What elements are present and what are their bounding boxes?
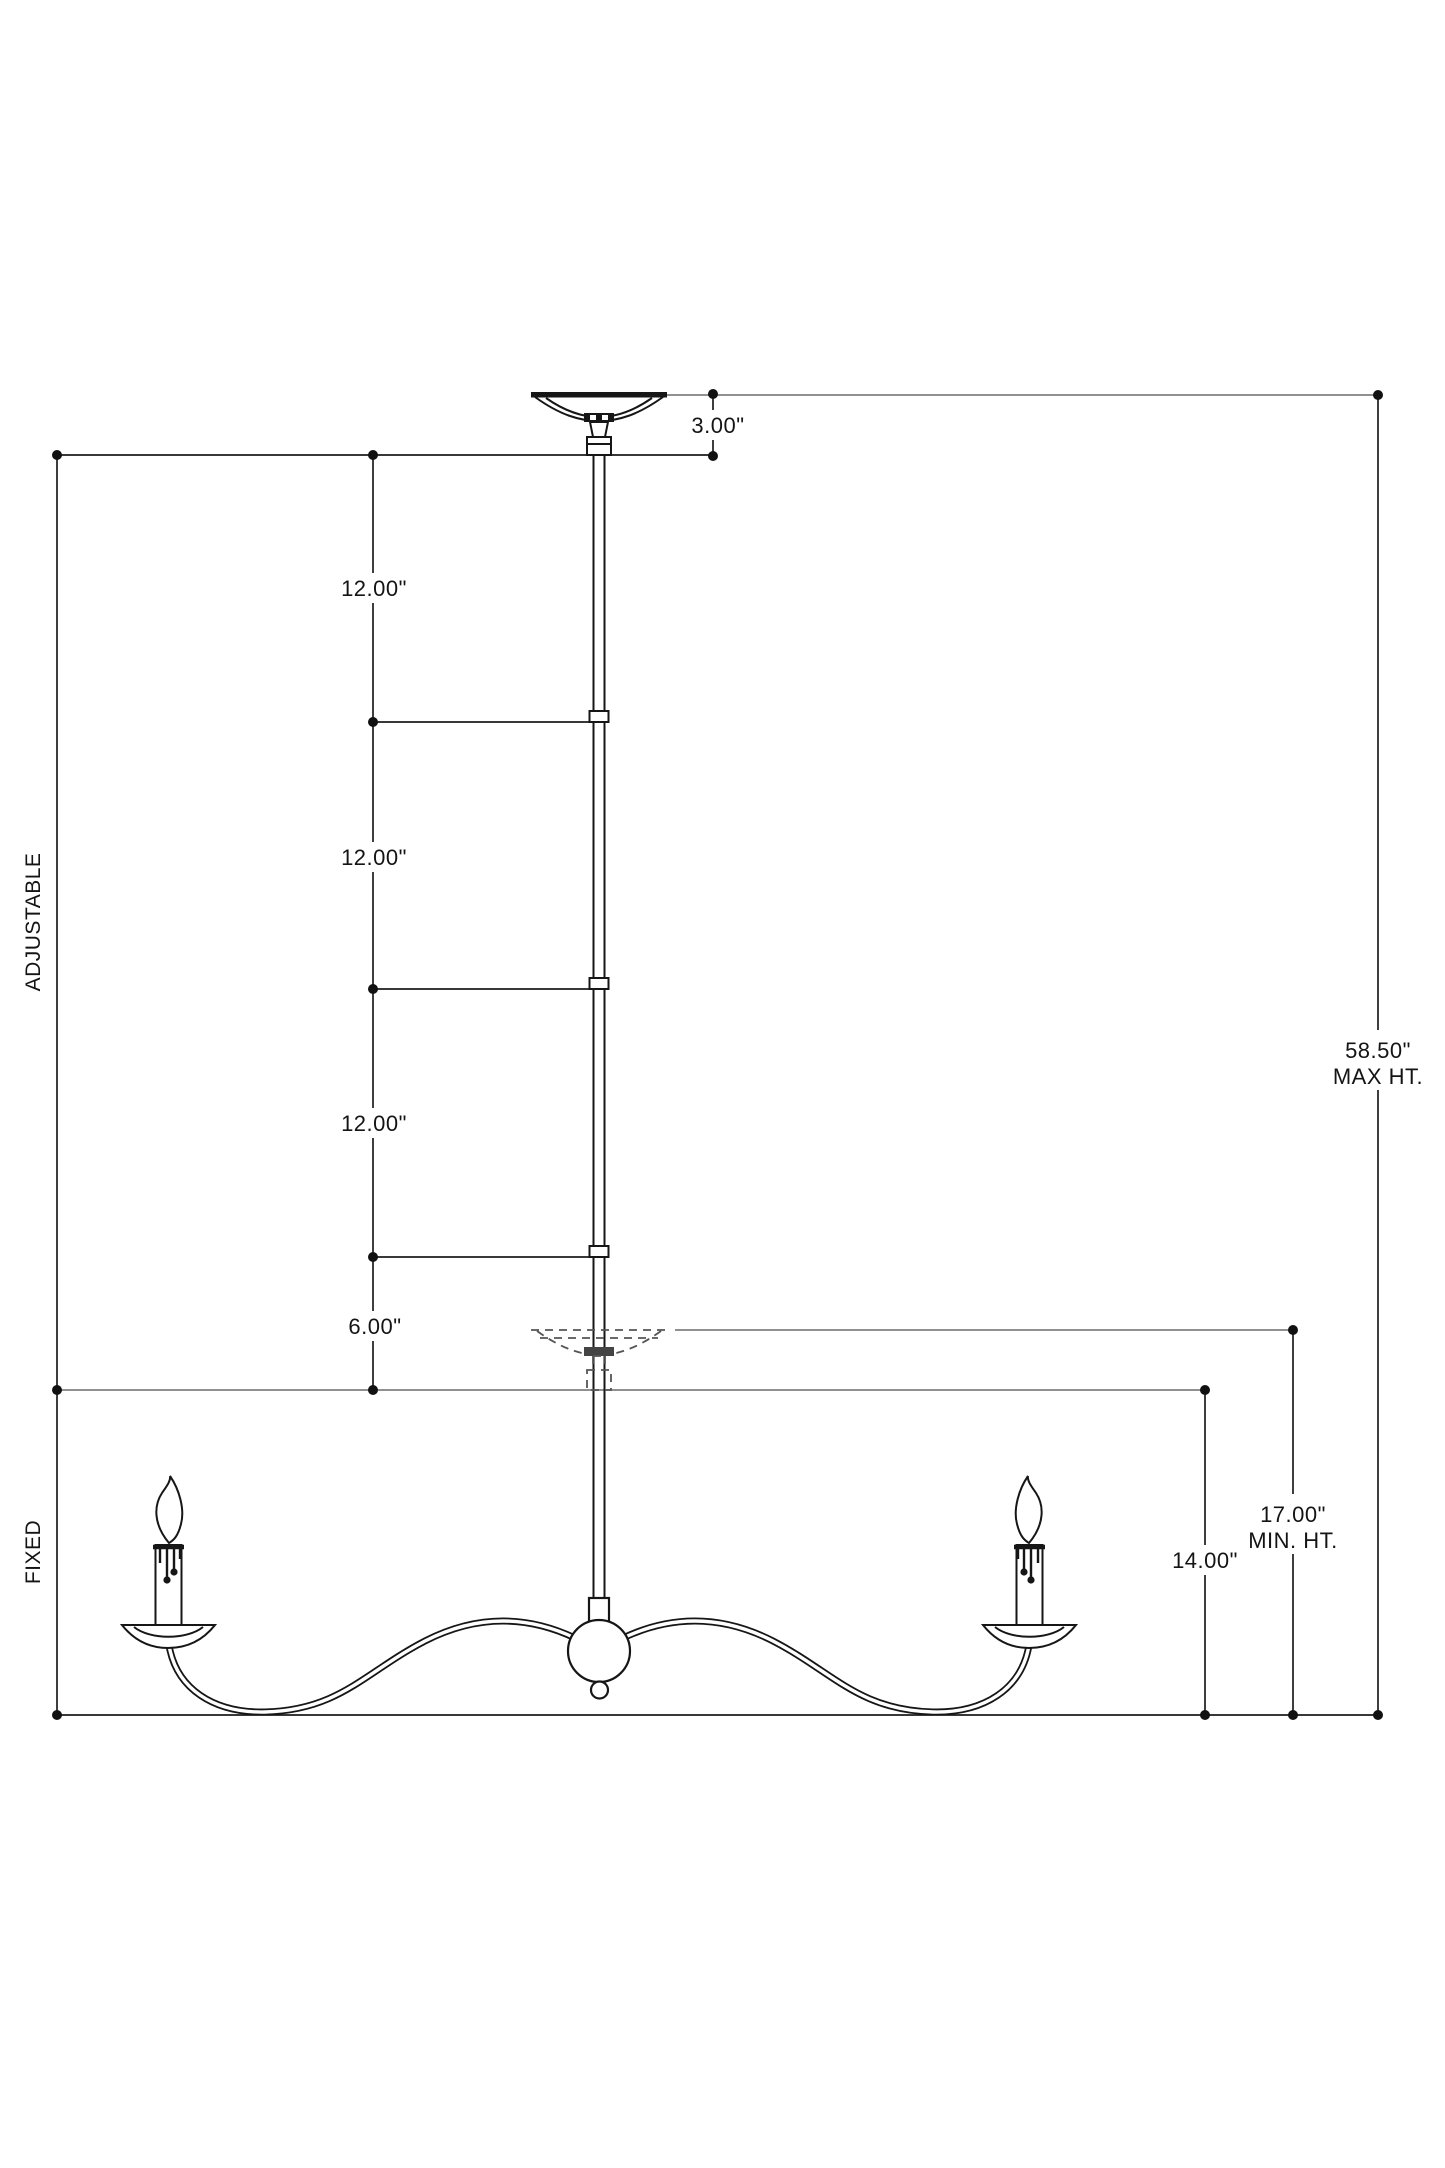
fixed-section-label: FIXED bbox=[22, 1520, 45, 1584]
right-candle-assembly bbox=[983, 1476, 1076, 1648]
center-collar bbox=[589, 1598, 609, 1622]
rod-coupling-1 bbox=[590, 711, 609, 722]
label-masks bbox=[341, 410, 1427, 1575]
fixture-height-label: 14.00" bbox=[1172, 1548, 1238, 1573]
ceiling-canopy bbox=[531, 392, 667, 455]
rod-segment-3-label: 12.00" bbox=[341, 1111, 407, 1136]
dimension-dots bbox=[52, 389, 1383, 1720]
rod-coupling-2 bbox=[590, 978, 609, 989]
min-height-label: MIN. HT. bbox=[1248, 1528, 1338, 1553]
canopy-drop-label: 3.00" bbox=[691, 413, 744, 438]
left-arm bbox=[169, 1621, 576, 1712]
max-height-value: 58.50" bbox=[1345, 1038, 1411, 1063]
rod-coupling-3 bbox=[590, 1246, 609, 1257]
drawing-sheet: 12.00" 12.00" 12.00" 6.00" 3.00" 14.00" … bbox=[0, 0, 1445, 2168]
reference-lines bbox=[57, 395, 1379, 1390]
chandelier-dimension-drawing: 12.00" 12.00" 12.00" 6.00" 3.00" 14.00" … bbox=[0, 0, 1445, 2168]
min-height-value: 17.00" bbox=[1260, 1502, 1326, 1527]
right-arm bbox=[623, 1621, 1030, 1712]
center-body bbox=[568, 1598, 630, 1699]
right-flame bbox=[1016, 1476, 1042, 1543]
left-candle-assembly bbox=[122, 1476, 215, 1648]
rod-segment-2-label: 12.00" bbox=[341, 845, 407, 870]
rod-segment-1-label: 12.00" bbox=[341, 576, 407, 601]
dimension-labels: 12.00" 12.00" 12.00" 6.00" 3.00" 14.00" … bbox=[22, 413, 1423, 1584]
downrod bbox=[590, 455, 609, 1598]
adjustable-section-label: ADJUSTABLE bbox=[22, 853, 45, 992]
finial-ball bbox=[591, 1682, 608, 1699]
slip-section-label: 6.00" bbox=[348, 1314, 401, 1339]
left-flame bbox=[156, 1476, 182, 1543]
dimension-lines bbox=[57, 394, 1379, 1715]
ghost-canopy-min-position bbox=[531, 1330, 667, 1390]
center-ball bbox=[568, 1620, 630, 1682]
max-height-label: MAX HT. bbox=[1333, 1064, 1423, 1089]
